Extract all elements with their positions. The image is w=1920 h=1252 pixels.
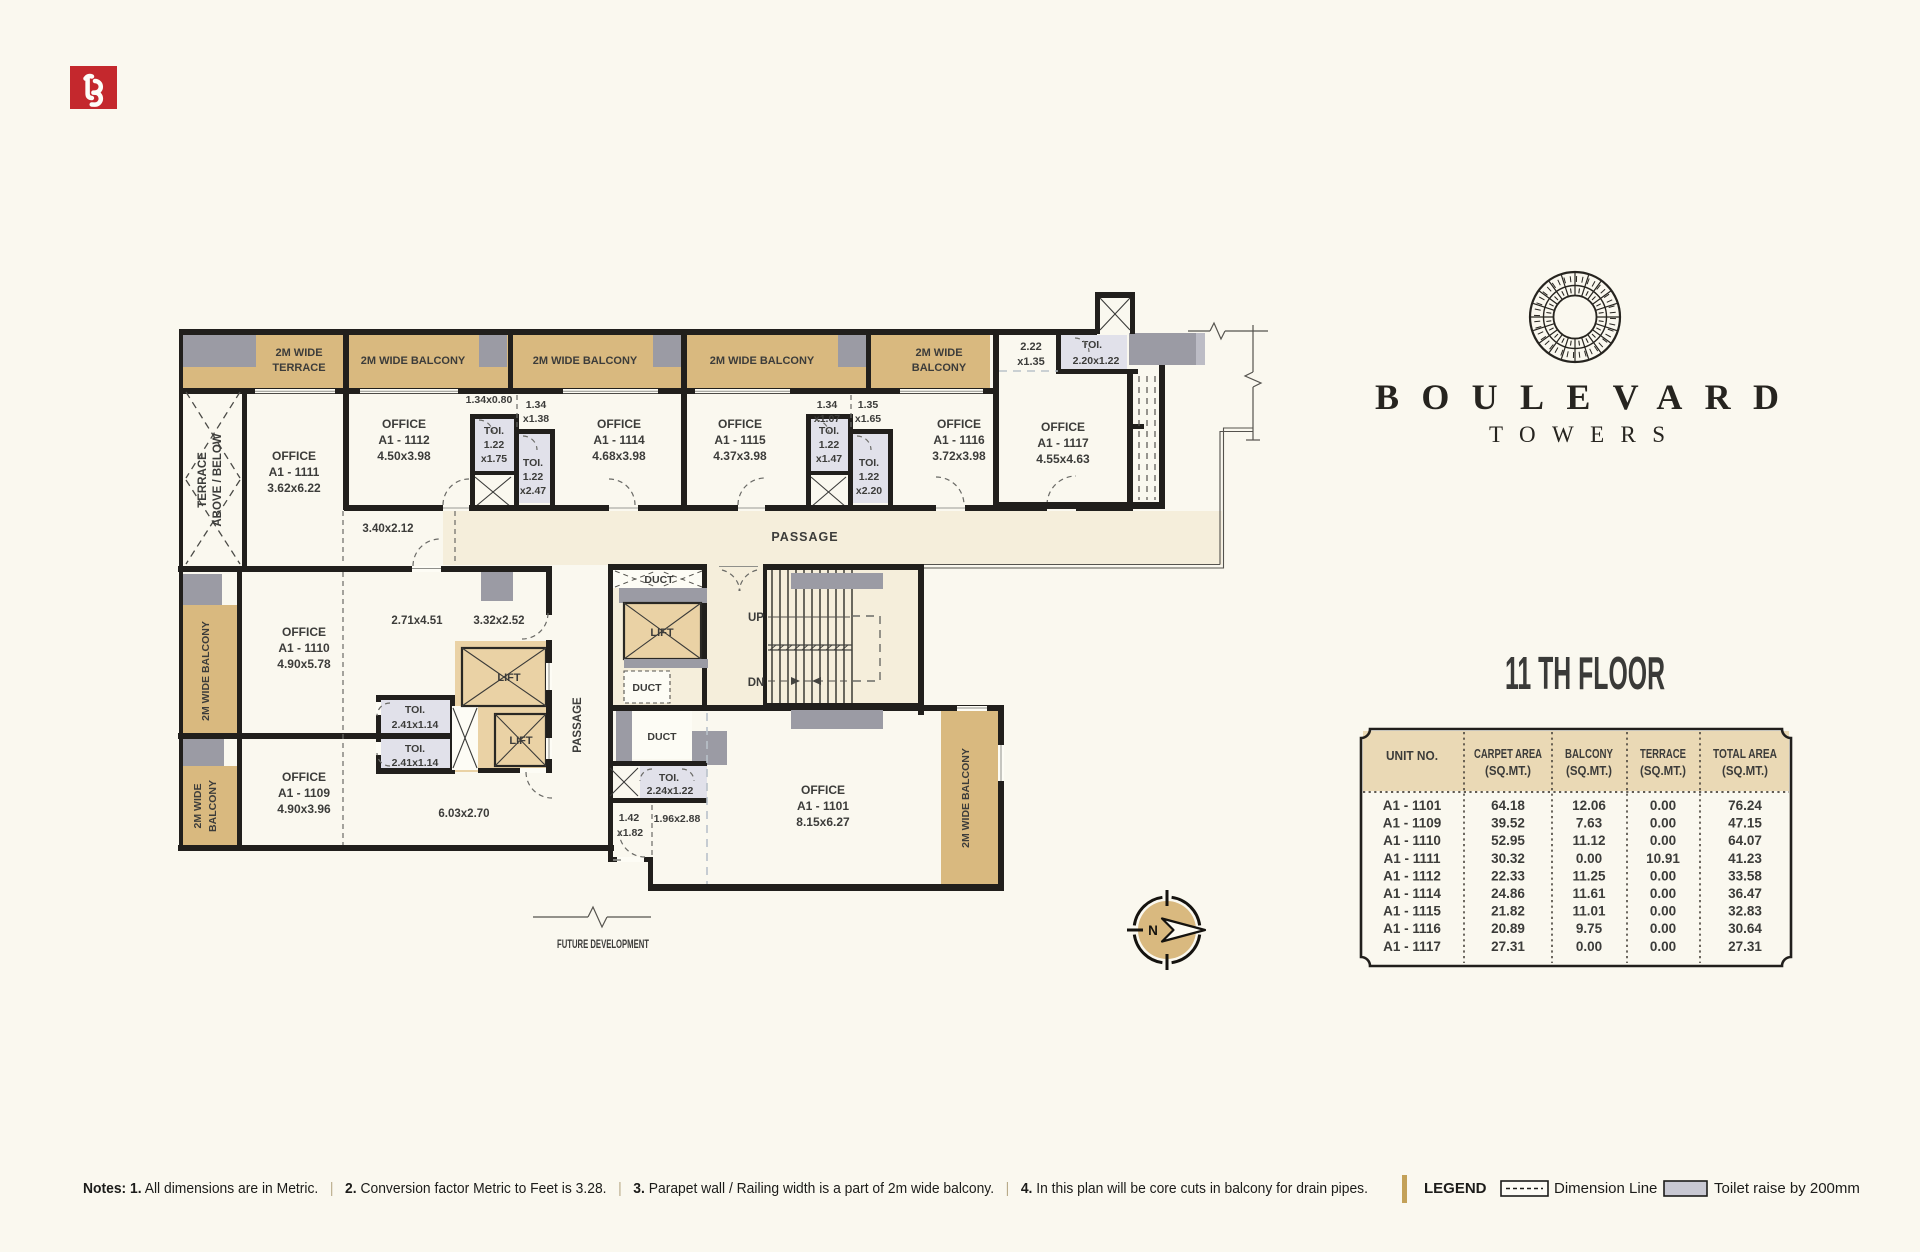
- svg-text:1.22: 1.22: [523, 471, 544, 483]
- svg-text:LIFT: LIFT: [497, 672, 520, 684]
- svg-text:2.24x1.22: 2.24x1.22: [647, 785, 694, 797]
- svg-text:24.86: 24.86: [1491, 886, 1525, 901]
- svg-text:22.33: 22.33: [1491, 868, 1525, 883]
- svg-text:OFFICE: OFFICE: [282, 625, 326, 639]
- svg-text:UNIT NO.: UNIT NO.: [1386, 749, 1438, 763]
- svg-text:BALCONY: BALCONY: [1565, 747, 1614, 761]
- svg-text:A1 - 1115: A1 - 1115: [714, 433, 766, 447]
- svg-text:A1 - 1112: A1 - 1112: [378, 433, 430, 447]
- svg-text:x1.07: x1.07: [814, 413, 840, 425]
- svg-text:4.37x3.98: 4.37x3.98: [713, 449, 767, 463]
- svg-text:0.00: 0.00: [1650, 904, 1676, 919]
- svg-text:36.47: 36.47: [1728, 886, 1762, 901]
- svg-text:FUTURE DEVELOPMENT: FUTURE DEVELOPMENT: [557, 939, 649, 951]
- svg-text:PASSAGE: PASSAGE: [572, 697, 584, 753]
- svg-text:2M WIDE: 2M WIDE: [275, 347, 322, 359]
- svg-text:64.18: 64.18: [1491, 798, 1525, 813]
- svg-text:2.41x1.14: 2.41x1.14: [392, 719, 439, 731]
- svg-text:1.96x2.88: 1.96x2.88: [654, 813, 701, 825]
- svg-text:DUCT: DUCT: [647, 731, 677, 743]
- svg-text:UP: UP: [748, 612, 764, 624]
- svg-text:4.50x3.98: 4.50x3.98: [377, 449, 431, 463]
- svg-text:2M WIDE BALCONY: 2M WIDE BALCONY: [710, 355, 815, 367]
- svg-text:21.82: 21.82: [1491, 904, 1525, 919]
- svg-text:Dimension Line: Dimension Line: [1554, 1180, 1657, 1197]
- svg-text:1.34x0.80: 1.34x0.80: [466, 394, 513, 406]
- svg-text:A1 - 1111: A1 - 1111: [1383, 851, 1441, 866]
- svg-text:1.22: 1.22: [819, 439, 840, 451]
- svg-text:x1.65: x1.65: [855, 413, 881, 425]
- svg-text:4.90x3.96: 4.90x3.96: [277, 802, 331, 816]
- svg-text:6.03x2.70: 6.03x2.70: [438, 808, 489, 820]
- svg-text:(SQ.MT.): (SQ.MT.): [1722, 764, 1768, 778]
- svg-text:2.41x1.14: 2.41x1.14: [392, 757, 439, 769]
- svg-text:TERRACE: TERRACE: [272, 362, 325, 374]
- svg-text:BOULEVARD: BOULEVARD: [1375, 377, 1779, 417]
- svg-text:A1 - 1110: A1 - 1110: [278, 641, 330, 655]
- svg-text:0.00: 0.00: [1650, 939, 1676, 954]
- svg-text:11.01: 11.01: [1572, 904, 1606, 919]
- svg-text:0.00: 0.00: [1650, 798, 1676, 813]
- svg-text:OFFICE: OFFICE: [597, 417, 641, 431]
- svg-text:30.32: 30.32: [1491, 851, 1525, 866]
- svg-text:12.06: 12.06: [1572, 798, 1606, 813]
- svg-text:30.64: 30.64: [1728, 921, 1762, 936]
- svg-text:OFFICE: OFFICE: [282, 770, 326, 784]
- svg-text:(SQ.MT.): (SQ.MT.): [1485, 764, 1531, 778]
- svg-text:32.83: 32.83: [1728, 904, 1762, 919]
- svg-text:2M WIDE BALCONY: 2M WIDE BALCONY: [200, 621, 212, 721]
- svg-text:DN: DN: [748, 677, 765, 689]
- svg-text:(SQ.MT.): (SQ.MT.): [1640, 764, 1686, 778]
- svg-text:LEGEND: LEGEND: [1424, 1180, 1487, 1197]
- svg-text:TERRACE: TERRACE: [1640, 747, 1686, 761]
- svg-text:TOI.: TOI.: [484, 425, 504, 437]
- svg-text:LIFT: LIFT: [650, 627, 673, 639]
- svg-text:A1 - 1115: A1 - 1115: [1383, 904, 1441, 919]
- svg-text:64.07: 64.07: [1728, 833, 1762, 848]
- svg-text:11 TH FLOOR: 11 TH FLOOR: [1505, 647, 1665, 699]
- svg-text:76.24: 76.24: [1728, 798, 1762, 813]
- svg-text:9.75: 9.75: [1576, 921, 1603, 936]
- svg-text:x1.47: x1.47: [816, 453, 842, 465]
- svg-text:2M WIDE: 2M WIDE: [192, 784, 204, 829]
- svg-text:2.71x4.51: 2.71x4.51: [391, 615, 443, 627]
- svg-text:2M WIDE BALCONY: 2M WIDE BALCONY: [960, 748, 972, 848]
- svg-text:A1 - 1114: A1 - 1114: [1383, 886, 1441, 901]
- svg-text:OFFICE: OFFICE: [272, 449, 316, 463]
- svg-text:TERRACE: TERRACE: [197, 452, 209, 508]
- svg-text:1.35: 1.35: [858, 399, 879, 411]
- svg-text:0.00: 0.00: [1650, 886, 1676, 901]
- svg-text:4.55x4.63: 4.55x4.63: [1036, 452, 1090, 466]
- svg-text:LIFT: LIFT: [509, 735, 532, 747]
- svg-text:A1 - 1110: A1 - 1110: [1383, 833, 1441, 848]
- svg-text:33.58: 33.58: [1728, 868, 1762, 883]
- svg-text:1.22: 1.22: [484, 439, 505, 451]
- svg-text:3.62x6.22: 3.62x6.22: [267, 481, 321, 495]
- svg-text:0.00: 0.00: [1576, 939, 1602, 954]
- svg-text:TOI.: TOI.: [1082, 339, 1102, 351]
- svg-text:x1.82: x1.82: [617, 827, 643, 839]
- svg-text:11.25: 11.25: [1572, 868, 1606, 883]
- svg-text:x1.35: x1.35: [1017, 356, 1045, 368]
- svg-text:A1 - 1101: A1 - 1101: [797, 799, 849, 813]
- svg-text:27.31: 27.31: [1728, 939, 1762, 954]
- svg-text:7.63: 7.63: [1576, 816, 1603, 831]
- svg-text:Toilet raise by 200mm: Toilet raise by 200mm: [1714, 1180, 1860, 1197]
- svg-text:1.42: 1.42: [619, 812, 640, 824]
- svg-text:ABOVE / BELOW: ABOVE / BELOW: [212, 433, 224, 526]
- svg-text:52.95: 52.95: [1491, 833, 1525, 848]
- svg-text:OFFICE: OFFICE: [801, 783, 845, 797]
- svg-text:x2.20: x2.20: [856, 485, 882, 497]
- svg-text:11.61: 11.61: [1572, 886, 1606, 901]
- svg-text:x1.75: x1.75: [481, 453, 507, 465]
- svg-text:Notes: 1. All dimensions are: Notes: 1. All dimensions are in Metric. …: [83, 1180, 1368, 1197]
- svg-text:A1 - 1116: A1 - 1116: [933, 433, 985, 447]
- svg-text:A1 - 1116: A1 - 1116: [1383, 921, 1441, 936]
- svg-text:OFFICE: OFFICE: [718, 417, 762, 431]
- svg-text:TOI.: TOI.: [859, 457, 879, 469]
- svg-text:A1 - 1114: A1 - 1114: [593, 433, 645, 447]
- svg-text:A1 - 1112: A1 - 1112: [1383, 868, 1441, 883]
- svg-text:8.15x6.27: 8.15x6.27: [796, 815, 850, 829]
- svg-text:2.22: 2.22: [1020, 341, 1041, 353]
- svg-text:1.34: 1.34: [526, 399, 547, 411]
- svg-text:A1 - 1109: A1 - 1109: [278, 786, 330, 800]
- svg-text:4.68x3.98: 4.68x3.98: [592, 449, 646, 463]
- svg-text:3.32x2.52: 3.32x2.52: [473, 615, 524, 627]
- svg-text:1.22: 1.22: [859, 471, 880, 483]
- svg-text:BALCONY: BALCONY: [912, 362, 967, 374]
- svg-text:(SQ.MT.): (SQ.MT.): [1566, 764, 1612, 778]
- svg-text:BALCONY: BALCONY: [207, 780, 219, 832]
- svg-text:2M WIDE BALCONY: 2M WIDE BALCONY: [361, 355, 466, 367]
- svg-text:3.72x3.98: 3.72x3.98: [932, 449, 986, 463]
- svg-text:TOI.: TOI.: [523, 457, 543, 469]
- svg-text:A1 - 1117: A1 - 1117: [1383, 939, 1441, 954]
- svg-text:TOI.: TOI.: [659, 772, 679, 784]
- svg-text:A1 - 1117: A1 - 1117: [1037, 436, 1089, 450]
- svg-text:OFFICE: OFFICE: [1041, 420, 1085, 434]
- svg-text:DUCT: DUCT: [632, 682, 662, 694]
- svg-text:47.15: 47.15: [1728, 816, 1762, 831]
- svg-text:27.31: 27.31: [1491, 939, 1525, 954]
- svg-text:20.89: 20.89: [1491, 921, 1525, 936]
- svg-text:2M WIDE: 2M WIDE: [915, 347, 962, 359]
- svg-text:0.00: 0.00: [1650, 868, 1676, 883]
- svg-text:TOI.: TOI.: [405, 743, 425, 755]
- svg-text:TOTAL AREA: TOTAL AREA: [1713, 747, 1777, 761]
- svg-text:0.00: 0.00: [1650, 921, 1676, 936]
- svg-text:0.00: 0.00: [1576, 851, 1602, 866]
- svg-text:TOI.: TOI.: [405, 704, 425, 716]
- svg-text:0.00: 0.00: [1650, 833, 1676, 848]
- svg-text:39.52: 39.52: [1491, 816, 1525, 831]
- svg-text:A1 - 1111: A1 - 1111: [269, 465, 320, 479]
- svg-text:x2.47: x2.47: [520, 485, 546, 497]
- svg-text:OFFICE: OFFICE: [937, 417, 981, 431]
- svg-text:2.20x1.22: 2.20x1.22: [1073, 355, 1120, 367]
- svg-text:CARPET AREA: CARPET AREA: [1474, 747, 1542, 761]
- svg-text:A1 - 1109: A1 - 1109: [1383, 816, 1442, 831]
- svg-text:N: N: [1148, 923, 1158, 938]
- svg-text:OFFICE: OFFICE: [382, 417, 426, 431]
- svg-text:3.40x2.12: 3.40x2.12: [362, 523, 413, 535]
- svg-text:10.91: 10.91: [1646, 851, 1680, 866]
- svg-text:1.34: 1.34: [817, 399, 838, 411]
- svg-text:A1 - 1101: A1 - 1101: [1383, 798, 1442, 813]
- svg-text:41.23: 41.23: [1728, 851, 1762, 866]
- svg-text:x1.38: x1.38: [523, 413, 549, 425]
- svg-text:11.12: 11.12: [1572, 833, 1605, 848]
- svg-text:PASSAGE: PASSAGE: [771, 530, 838, 544]
- svg-text:4.90x5.78: 4.90x5.78: [277, 657, 331, 671]
- svg-text:0.00: 0.00: [1650, 816, 1676, 831]
- svg-text:2M WIDE BALCONY: 2M WIDE BALCONY: [533, 355, 638, 367]
